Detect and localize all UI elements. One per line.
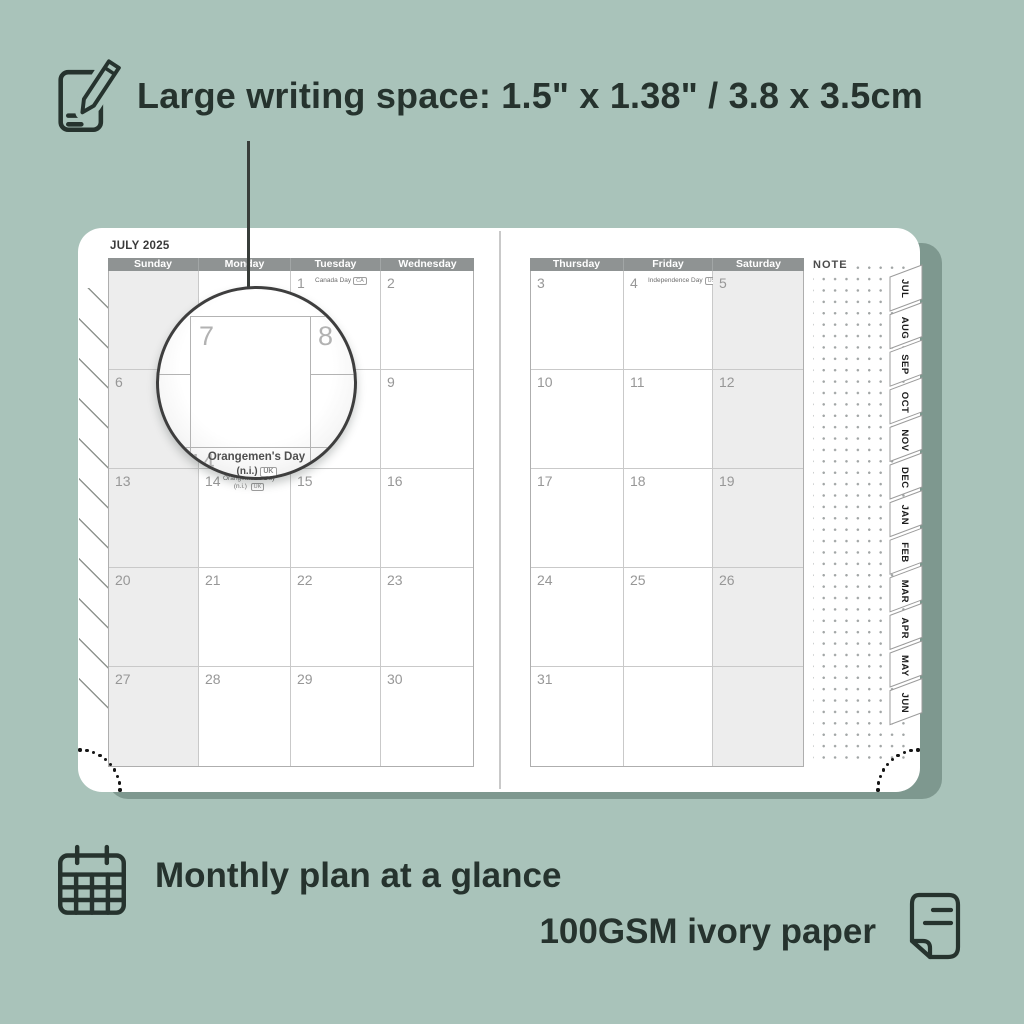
day-number: 3 [537,275,545,291]
day-number: 6 [115,374,123,390]
tab-label-nov: NOV [899,429,910,451]
tab-label-jul: JUL [899,279,910,298]
day-number: 12 [719,374,735,390]
month-title: JULY 2025 [110,240,170,252]
day-number: 26 [719,572,735,588]
tab-label-feb: FEB [899,542,910,563]
perforation-dot [916,748,919,751]
calendar-cell-29: 29 [291,667,381,766]
tab-label-jan: JAN [899,505,910,526]
mag-gridline [159,374,190,375]
calendar-cell-3: 3 [531,271,624,370]
holiday-label: Independence DayUS [648,277,718,285]
day-number: 22 [297,572,313,588]
calendar-cell-20: 20 [109,568,199,667]
mag-holiday-detail: (n.i.) UK [159,466,354,477]
day-header-wednesday: Wednesday [381,258,474,271]
calendar-cell-12: 12 [713,370,803,469]
tab-label-apr: APR [899,617,910,639]
calendar-cell-30: 30 [381,667,473,766]
perforation-dot [896,754,899,757]
perforation-dot [877,781,880,784]
perforation-dot [882,768,885,771]
perforation-dot [78,748,81,751]
day-number: 11 [630,374,645,390]
perforation-dot [85,749,88,752]
mag-gridline [190,316,354,317]
day-number: 23 [387,572,403,588]
day-number: 13 [115,473,131,489]
calendar-cell-27: 27 [109,667,199,766]
calendar-cell-empty [624,667,713,766]
tab-label-jun: JUN [899,693,910,714]
day-number: 29 [297,671,313,687]
right-day-header-bar: ThursdayFridaySaturday [530,258,804,271]
calendar-cell-21: 21 [199,568,291,667]
day-number: 5 [719,275,727,291]
day-number: 10 [537,374,553,390]
mag-country-badge: UK [260,467,276,477]
calendar-cell-19: 19 [713,469,803,568]
calendar-cell-4: 4Independence DayUS [624,271,713,370]
day-header-tuesday: Tuesday [291,258,381,271]
calendar-cell-15: 15 [291,469,381,568]
calendar-cell-16: 16 [381,469,473,568]
perforation-dot [118,788,121,791]
tab-label-may: MAY [899,655,910,677]
day-number: 9 [387,374,395,390]
day-number: 2 [387,275,395,291]
day-number: 24 [537,572,553,588]
perforation-dot [876,788,879,791]
day-header-thursday: Thursday [530,258,624,271]
day-number: 27 [115,671,131,687]
day-number: 28 [205,671,221,687]
tab-label-oct: OCT [899,392,910,414]
day-number: 21 [205,572,221,588]
mag-holiday-name: Orangemen's Day [159,451,354,463]
calendar-cell-10: 10 [531,370,624,469]
calendar-cell-9: 9 [381,370,473,469]
tab-label-aug: AUG [899,317,910,340]
mag-gridline [159,447,354,448]
calendar-cell-14: 14Orangemen's Day(n.i.) UK [199,469,291,568]
day-number: 18 [630,473,646,489]
mag-day-8: 8 [318,321,333,352]
calendar-cell-18: 18 [624,469,713,568]
magnifier-circle: 7 8 14 Orangemen's Day (n.i.) UK [156,286,357,480]
day-number: 31 [537,671,553,687]
country-badge: CA [353,277,367,285]
day-header-saturday: Saturday [713,258,804,271]
mag-day-7: 7 [199,321,214,352]
calendar-cell-31: 31 [531,667,624,766]
spread-spine [499,231,501,789]
day-number: 30 [387,671,403,687]
calendar-cell-26: 26 [713,568,803,667]
country-badge: UK [251,483,265,491]
calendar-cell-11: 11 [624,370,713,469]
tab-label-mar: MAR [899,580,910,603]
callout-line [247,141,250,293]
calendar-grid-icon [56,840,128,924]
calendar-cell-2: 2 [381,271,473,370]
day-number: 17 [537,473,553,489]
mag-holiday-suffix: (n.i.) [236,466,257,477]
day-number: 4 [630,275,638,291]
tab-label-sep: SEP [899,354,910,375]
perforation-dot [909,749,912,752]
day-number: 20 [115,572,131,588]
headline-text: Large writing space: 1.5" x 1.38" / 3.8 … [137,75,923,117]
perforation-dot [903,751,906,754]
calendar-cell-23: 23 [381,568,473,667]
perforation-dot [879,775,882,778]
right-calendar-grid: 34Independence DayUS51011121718192425263… [530,271,804,767]
perforation-dot [98,754,101,757]
left-day-header-bar: SundayMondayTuesdayWednesday [108,258,474,271]
calendar-cell-25: 25 [624,568,713,667]
perforation-dot [118,781,121,784]
day-number: 25 [630,572,646,588]
feature-paper: 100GSM ivory paper [400,912,876,952]
calendar-cell-5: 5 [713,271,803,370]
perforation-dot [113,768,116,771]
page-edge-hatching [79,288,108,718]
calendar-cell-17: 17 [531,469,624,568]
day-header-friday: Friday [624,258,713,271]
product-image: Large writing space: 1.5" x 1.38" / 3.8 … [0,0,1024,1024]
perforation-dot [891,758,894,761]
calendar-cell-13: 13 [109,469,199,568]
day-header-sunday: Sunday [108,258,199,271]
perforation-dot [886,763,889,766]
calendar-cell-28: 28 [199,667,291,766]
calendar-cell-22: 22 [291,568,381,667]
day-number: 16 [387,473,403,489]
note-label: NOTE [813,259,851,271]
day-header-monday: Monday [199,258,291,271]
holiday-label: Canada DayCA [315,277,367,285]
mag-gridline [310,374,354,375]
tab-label-dec: DEC [899,467,910,489]
feature-monthly-plan: Monthly plan at a glance [155,856,561,896]
calendar-cell-empty [713,667,803,766]
day-number: 1 [297,275,305,291]
day-number: 19 [719,473,735,489]
pencil-note-icon [52,55,128,135]
calendar-cell-24: 24 [531,568,624,667]
month-tabs: JULAUGSEPOCTNOVDECJANFEBMARAPRMAYJUN [889,264,925,734]
paper-icon [897,888,969,966]
